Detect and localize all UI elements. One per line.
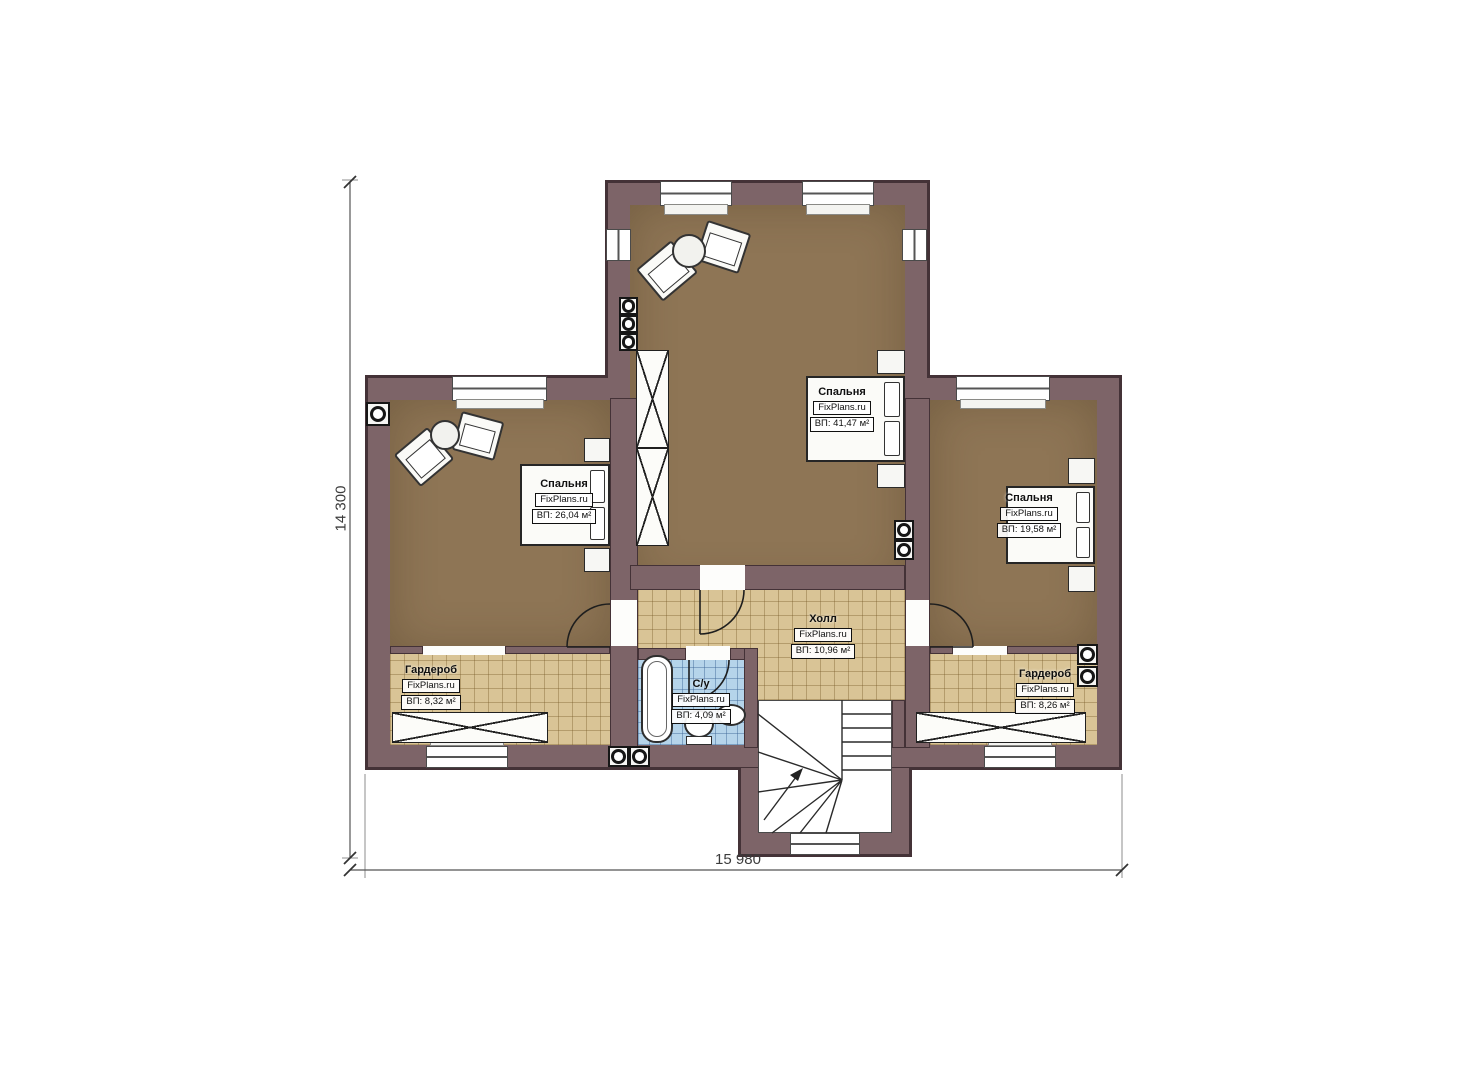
floor-plan: Спальня FixPlans.ru ВП: 41,47 м² Спальня… (0, 0, 1473, 1080)
nightstand (584, 548, 610, 572)
windowsill (960, 399, 1046, 409)
nightstand (877, 464, 905, 488)
watermark: FixPlans.ru (1000, 507, 1058, 522)
door-opening-bedroom-right (906, 600, 929, 646)
window-leftwing-top (452, 376, 547, 401)
partition-bath-top-b (730, 648, 745, 660)
room-label-hall: Холл FixPlans.ru ВП: 10,96 м² (776, 613, 870, 659)
partition-stair-right (892, 700, 905, 748)
watermark: FixPlans.ru (672, 693, 730, 708)
flue-icon (894, 540, 914, 560)
partition-wardrobe-left-a (390, 646, 423, 654)
window-rightwing-bottom (984, 746, 1056, 768)
passage-wardrobe-left (423, 646, 505, 655)
room-name: Холл (809, 613, 837, 626)
side-table (430, 420, 460, 450)
wardrobe-cabinet-left (392, 712, 548, 743)
flue-icon (629, 746, 650, 767)
wardrobe-cabinet-right (916, 712, 1086, 743)
room-label-bedroom-right: Спальня FixPlans.ru ВП: 19,58 м² (986, 492, 1072, 538)
flue-icon (619, 333, 638, 351)
room-area: ВП: 8,32 м² (401, 695, 460, 710)
room-area: ВП: 4,09 м² (671, 709, 730, 724)
flue-icon (1077, 644, 1098, 665)
window-topblock-right (902, 229, 927, 261)
dimension-width: 15 980 (698, 851, 778, 868)
room-label-wardrobe-left: Гардероб FixPlans.ru ВП: 8,32 м² (394, 664, 468, 710)
room-name: Гардероб (1019, 668, 1071, 681)
dimension-height: 14 300 (333, 474, 350, 544)
nightstand (1068, 458, 1095, 484)
flue-icon (619, 315, 638, 333)
watermark: FixPlans.ru (794, 628, 852, 643)
partition-right (905, 398, 930, 748)
partition-hall-top (630, 565, 905, 590)
room-name: С/у (692, 678, 709, 691)
door-opening-bedroom-main (700, 565, 745, 590)
window-top-1 (660, 181, 732, 206)
room-area: ВП: 8,26 м² (1015, 699, 1074, 714)
door-opening-bathroom (686, 646, 730, 660)
window-topblock-left (606, 229, 631, 261)
watermark: FixPlans.ru (402, 679, 460, 694)
flue-icon (619, 297, 638, 315)
wardrobe-cabinet (636, 350, 669, 448)
room-area: ВП: 10,96 м² (791, 644, 856, 659)
room-label-bedroom-main: Спальня FixPlans.ru ВП: 41,47 м² (800, 386, 884, 432)
windowsill (664, 204, 728, 215)
window-rightwing-top (956, 376, 1050, 401)
door-opening-bedroom-left (611, 600, 637, 646)
window-stair-bay (790, 833, 860, 855)
room-name: Спальня (818, 386, 866, 399)
flue-icon (894, 520, 914, 540)
staircase-floor (758, 700, 892, 833)
watermark: FixPlans.ru (813, 401, 871, 416)
room-area: ВП: 26,04 м² (532, 509, 597, 524)
partition-wardrobe-right-a (930, 646, 953, 654)
room-name: Спальня (1005, 492, 1053, 505)
room-name: Гардероб (405, 664, 457, 677)
room-area: ВП: 19,58 м² (997, 523, 1062, 538)
room-label-wardrobe-right: Гардероб FixPlans.ru ВП: 8,26 м² (1006, 668, 1084, 714)
room-label-bedroom-left: Спальня FixPlans.ru ВП: 26,04 м² (522, 478, 606, 524)
windowsill (456, 399, 544, 409)
nightstand (584, 438, 610, 462)
room-name: Спальня (540, 478, 588, 491)
partition-bath-right (744, 648, 758, 748)
room-area: ВП: 41,47 м² (810, 417, 875, 432)
window-top-2 (802, 181, 874, 206)
watermark: FixPlans.ru (1016, 683, 1074, 698)
nightstand (1068, 566, 1095, 592)
wardrobe-cabinet (636, 448, 669, 546)
window-leftwing-bottom (426, 746, 508, 768)
toilet-tank (686, 736, 712, 745)
windowsill (806, 204, 870, 215)
watermark: FixPlans.ru (535, 493, 593, 508)
partition-wardrobe-left-b (505, 646, 610, 654)
side-table (672, 234, 706, 268)
passage-wardrobe-right (953, 646, 1007, 655)
nightstand (877, 350, 905, 374)
flue-icon (366, 402, 390, 426)
room-label-bathroom: С/у FixPlans.ru ВП: 4,09 м² (660, 678, 742, 724)
flue-icon (608, 746, 629, 767)
